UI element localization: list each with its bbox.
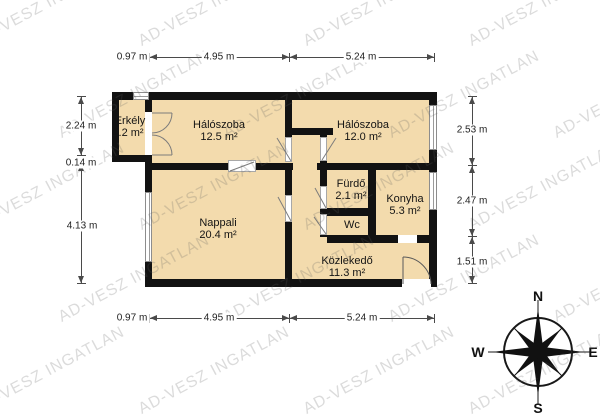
room-area-kitchen: 5.3 m² [389, 205, 420, 217]
bath-door [320, 186, 327, 209]
dim-top-2: 4.95 m [202, 52, 237, 63]
room-area-bedroom1: 12.5 m² [200, 131, 237, 143]
living-window [145, 192, 152, 262]
dim-top-3: 5.24 m [344, 52, 379, 63]
room-label-balcony: Erkély [115, 115, 146, 127]
wc-door [320, 214, 327, 235]
watermark-text: AD-VESZ INGATLAN [301, 0, 458, 51]
wall-passage-cap [285, 128, 333, 135]
room-label-bath: Fürdő [337, 178, 366, 190]
kitchen-window [429, 172, 437, 210]
compass-west-label: W [471, 344, 484, 360]
dim-left-3: 4.13 m [65, 221, 100, 232]
watermark-text: AD-VESZ INGATLAN [0, 0, 128, 51]
entrance-opening [402, 279, 431, 287]
dim-left-1: 2.24 m [64, 121, 99, 132]
room-label-living: Nappali [199, 217, 236, 229]
watermark-text: AD-VESZ INGATLAN [551, 47, 600, 142]
dim-bottom-3: 5.24 m [345, 313, 380, 324]
watermark-text: AD-VESZ INGATLAN [136, 0, 293, 51]
dim-right-3: 1.51 m [455, 257, 490, 268]
room-area-bedroom2: 12.0 m² [344, 131, 381, 143]
watermark-text: AD-VESZ INGATLAN [0, 323, 128, 418]
wall-bottom [145, 279, 437, 287]
wall-hall-top-b [417, 235, 437, 243]
dim-left-2: 0.14 m [64, 158, 99, 169]
room-label-bedroom2: Hálószoba [337, 119, 389, 131]
room-label-hall: Közlekedő [321, 255, 372, 267]
watermark-text: AD-VESZ INGATLAN [551, 231, 600, 326]
compass-south-label: S [533, 400, 542, 416]
kitchen-opening [398, 235, 417, 243]
room-area-hall: 11.3 m² [329, 267, 365, 279]
dim-bottom-2: 4.95 m [202, 313, 237, 324]
wall-balcony-bottom [112, 155, 152, 162]
bedroom2-door [320, 137, 327, 161]
balcony-door-opening [145, 112, 152, 155]
watermark-text: AD-VESZ INGATLAN [301, 323, 458, 418]
room-label-bedroom1: Hálószoba [193, 119, 245, 131]
compass-east-label: E [588, 344, 597, 360]
wall-hall-top-a [327, 235, 398, 243]
room-label-kitchen: Konyha [386, 193, 423, 205]
wall-top [112, 92, 437, 100]
room-area-bath: 2.1 m² [335, 190, 366, 202]
room-area-living: 20.4 m² [199, 229, 236, 241]
wall-bedroom2-south [317, 163, 437, 170]
balcony-window [133, 92, 149, 100]
wall-bath-kitchen [368, 163, 376, 243]
watermark-text: AD-VESZ INGATLAN [466, 0, 600, 51]
bedroom1-door [285, 137, 292, 162]
wall-balcony-right-stub [145, 100, 152, 112]
floorplan-canvas: Erkély 2.2 m² Hálószoba 12.5 m² Hálószob… [0, 0, 600, 420]
watermark-text: AD-VESZ INGATLAN [466, 139, 600, 234]
wall-bath-wc [327, 208, 376, 216]
bedroom2-window [429, 105, 437, 150]
compass-rose [488, 300, 590, 404]
wall-bedroom1-living [152, 163, 293, 170]
living-hall-door [285, 195, 292, 222]
watermark-text: AD-VESZ INGATLAN [136, 323, 293, 418]
bedroom1-living-door [228, 160, 256, 172]
compass-north-label: N [533, 288, 543, 304]
room-label-wc: Wc [344, 219, 360, 231]
dim-right-1: 2.53 m [455, 125, 490, 136]
dim-right-2: 2.47 m [455, 196, 490, 207]
room-area-balcony: 2.2 m² [112, 127, 143, 139]
dim-top-1: 0.97 m [115, 52, 150, 63]
dim-bottom-1: 0.97 m [115, 313, 150, 324]
